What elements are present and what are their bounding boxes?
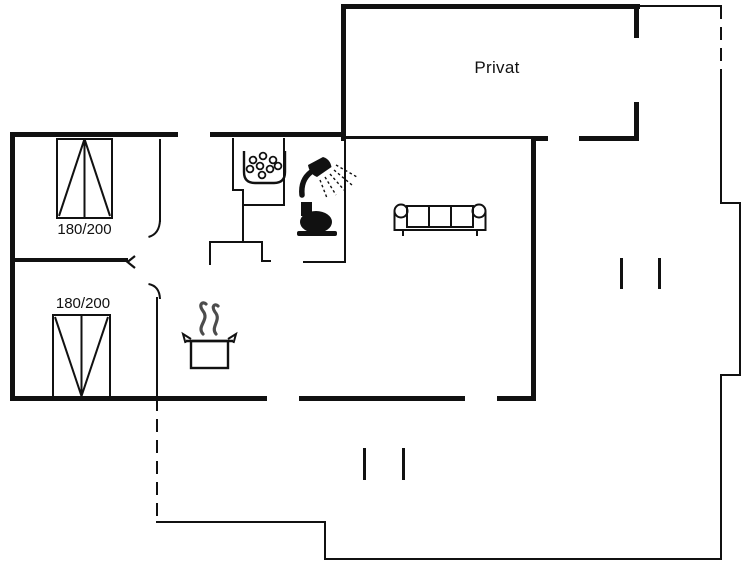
- shower-icon: [302, 157, 357, 198]
- stove-hob-icon: [244, 151, 285, 183]
- window-opening-tick-icon: [365, 258, 660, 480]
- bed-size-label-bottom: 180/200: [43, 295, 123, 312]
- symbols-layer: [0, 0, 755, 566]
- sofa-icon: [395, 205, 486, 237]
- door-swing-arc-icon: [149, 220, 161, 237]
- door-swing-arc-icon: [149, 284, 161, 299]
- toilet-icon: [297, 202, 337, 236]
- privat-room-label: Privat: [450, 58, 544, 78]
- floorplan: Privat 180/200 180/200: [0, 0, 755, 566]
- double-bed-top-icon: [57, 139, 112, 218]
- double-bed-bottom-icon: [53, 315, 110, 397]
- door-chevron-icon: [128, 256, 136, 268]
- cooking-pot-icon: [183, 303, 236, 368]
- bed-size-label-top: 180/200: [44, 221, 125, 238]
